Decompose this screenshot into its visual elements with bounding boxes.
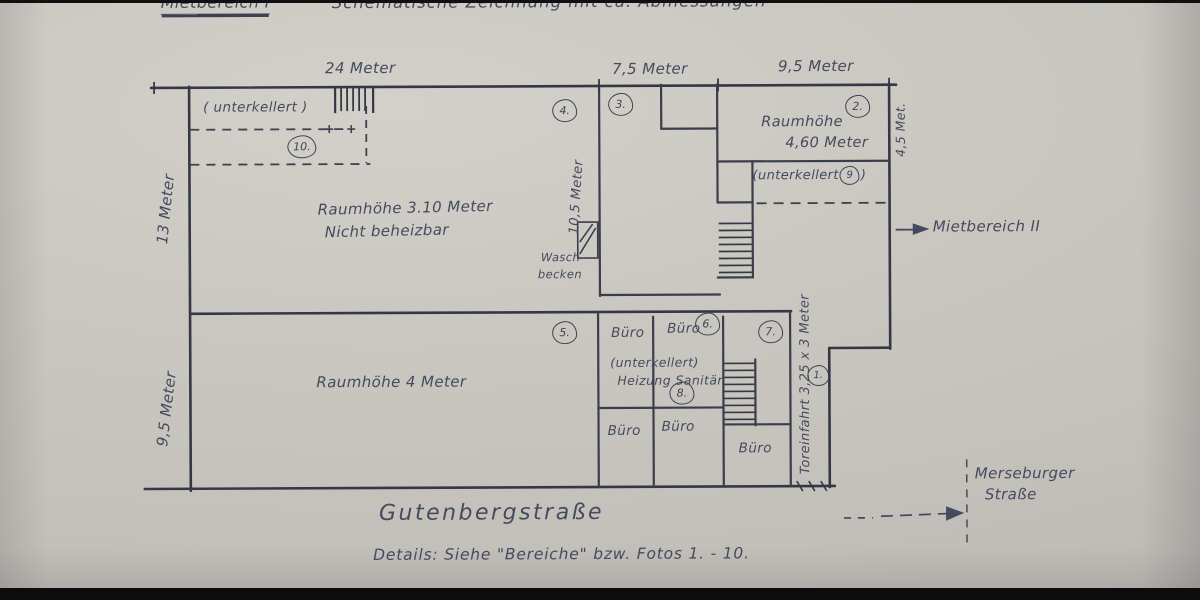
area-badge-2: 2. <box>845 95 870 118</box>
details-note: Details: Siehe "Bereiche" bzw. Fotos 1. … <box>373 544 750 564</box>
area-badge-4: 4. <box>552 99 577 122</box>
dim-label-top-middle: 7,5 Meter <box>612 60 688 78</box>
scanned-floorplan-photo: Mietbereich I Schematische Zeichnung mit… <box>0 0 1200 600</box>
dim-label-right-upper: 4,5 Met. <box>893 102 908 156</box>
office-label-1: Büro <box>611 325 644 341</box>
office-label-3: Büro <box>608 423 641 439</box>
room-label-upper-hall-1: Raumhöhe 3.10 Meter <box>317 197 492 219</box>
sink-label-2: becken <box>538 267 582 281</box>
office-label-5: Büro <box>739 440 772 456</box>
room-label-upper-hall-2: Nicht beheizbar <box>325 221 450 242</box>
area-badge-7: 7. <box>758 320 783 343</box>
room-label-lower-hall: Raumhöhe 4 Meter <box>316 373 466 392</box>
room-label-cellar-mid-2: Heizung Sanitär <box>617 372 723 387</box>
cellar-right-close: ) <box>861 168 867 183</box>
floor-plan: Mietbereich I Schematische Zeichnung mit… <box>0 0 1200 600</box>
photo-top-border <box>0 0 1200 3</box>
area-badge-8: 8. <box>669 382 694 405</box>
room-label-cellar-mid-1: (unterkellert) <box>610 355 699 370</box>
cellar-right-text: (unterkellert <box>752 168 838 183</box>
street-label-right-1: Merseburger <box>975 464 1075 482</box>
area-badge-1: 1. <box>807 365 829 386</box>
area-badge-9: 9 <box>840 166 860 185</box>
mietbereich2-label: Mietbereich II <box>933 217 1041 235</box>
stairs-middle <box>719 223 752 272</box>
room-label-cellar-right: (unterkellert 9 ) <box>752 166 866 185</box>
street-label-bottom: Gutenbergstraße <box>379 500 604 526</box>
area-badge-5: 5. <box>552 321 577 344</box>
street-label-right-2: Straße <box>985 485 1037 503</box>
sink-label-1: Wasch- <box>541 250 585 264</box>
dim-label-top-left: 24 Meter <box>325 59 396 77</box>
stairs-lower <box>724 363 754 419</box>
area-badge-3: 3. <box>608 93 633 116</box>
mietbereich2-arrow <box>896 225 927 234</box>
dim-label-top-right: 9,5 Meter <box>778 57 854 75</box>
area-badge-10: 10. <box>287 135 316 158</box>
office-label-4: Büro <box>662 419 695 435</box>
room-label-room2-2: 4,60 Meter <box>785 135 868 151</box>
room-label-cellar-upper-left: ( unterkellert ) <box>203 99 308 115</box>
area-badge-6: 6. <box>695 312 720 335</box>
room-label-room2-1: Raumhöhe <box>761 114 843 130</box>
photo-bottom-border <box>0 588 1200 600</box>
stairs-upper-left <box>335 87 373 113</box>
merseburger-arrow <box>844 459 967 548</box>
gate-dimension-label: Toreinfahrt 3,25 x 3 Meter <box>797 294 813 474</box>
